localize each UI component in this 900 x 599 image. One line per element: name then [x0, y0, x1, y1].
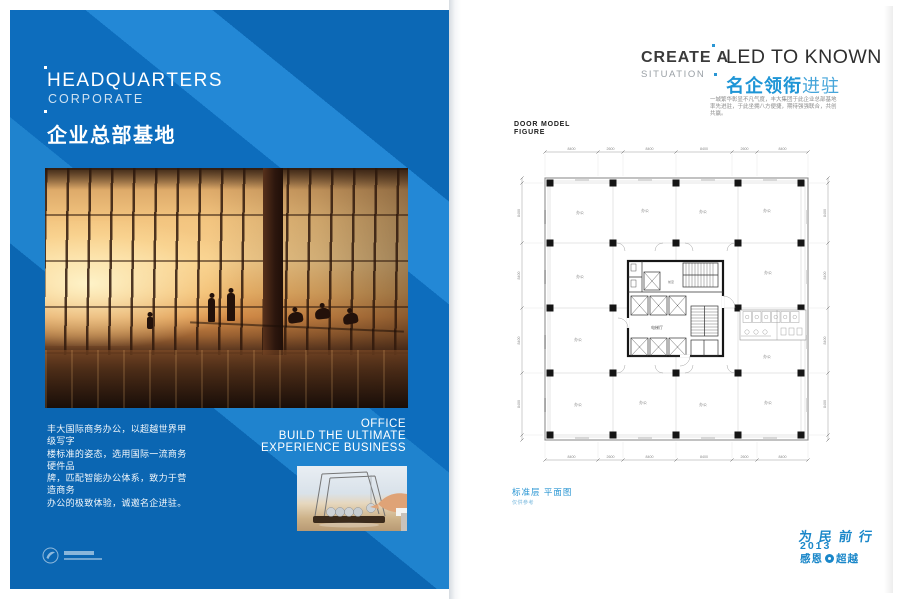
dim-label: 8400	[823, 337, 827, 345]
circle-mark-icon	[825, 554, 834, 563]
page-title: HEADQUARTERS	[47, 70, 223, 92]
footer-thanks: 感恩 超越	[800, 551, 859, 566]
paragraph-line: 共赢。	[710, 111, 862, 118]
header-led: LED TO KNOWN	[726, 46, 882, 69]
room-label: 办公	[574, 402, 582, 407]
footer-thanks-right: 超越	[836, 551, 859, 566]
page-fold-shadow	[449, 0, 465, 599]
room-label: 办公	[699, 402, 707, 407]
dim-label: 8400	[823, 272, 827, 280]
logo-text-line	[64, 558, 102, 561]
page-right-edge-shadow	[884, 6, 893, 593]
reflective-floor	[45, 350, 408, 408]
cradle-balls	[327, 475, 376, 517]
square-bullet-icon	[712, 44, 715, 47]
lobby-label: 前室	[668, 279, 674, 284]
room-label: 办公	[699, 209, 707, 214]
dim-label: 8400	[517, 272, 521, 280]
dim-label: 8400	[823, 400, 827, 408]
dim-label: 8400	[700, 455, 708, 459]
floor-plan: 办公 办公 办公 办公 办公 办公 办公 办公 办公 办公 办公 办公 电梯厅 …	[505, 140, 840, 480]
header-create: CREATE A	[641, 49, 729, 67]
dim-label: 2600	[741, 455, 749, 459]
dim-label: 8400	[779, 147, 787, 151]
tagline-line: BUILD THE ULTIMATE	[261, 430, 406, 442]
room-label: 办公	[763, 208, 771, 213]
window-mullions	[45, 168, 408, 355]
dim-label: 2600	[607, 147, 615, 151]
header-intro-paragraph: 一城繁华彰显不凡气度，丰大集团于此企业总部基地 率先进驻，于此坐拥八方便捷，期待…	[710, 97, 862, 118]
brand-logo	[42, 547, 102, 564]
newtons-cradle-photo	[297, 466, 407, 531]
logo-text-line	[64, 551, 94, 555]
footer-thanks-left: 感恩	[800, 551, 823, 566]
cradle-base	[313, 516, 385, 523]
room-label: 办公	[576, 274, 584, 279]
square-bullet-icon	[714, 73, 717, 76]
dim-label: 8400	[517, 337, 521, 345]
dim-label: 8400	[568, 147, 576, 151]
room-label: 办公	[576, 210, 584, 215]
dim-label: 8400	[517, 209, 521, 217]
paragraph-line: 一城繁华彰显不凡气度，丰大集团于此企业总部基地	[710, 97, 862, 104]
header-led-block: LED TO KNOWN 名企领衔进驻	[726, 46, 882, 98]
dim-label: 8400	[646, 455, 654, 459]
headline-cn-bold: 名企领衔	[726, 76, 802, 96]
header-headline-cn: 名企领衔进驻	[726, 72, 882, 98]
dim-label: 8400	[779, 455, 787, 459]
paragraph-line: 办公的极致体验，诚邀名企进驻。	[47, 497, 193, 509]
page-subtitle: CORPORATE	[48, 92, 144, 106]
dim-label: 2600	[607, 455, 615, 459]
dim-label: 2600	[741, 147, 749, 151]
room-label: 办公	[641, 208, 649, 213]
room-label: 办公	[574, 337, 582, 342]
paragraph-line: 牌，匹配智能办公体系，致力于营造商务	[47, 472, 193, 497]
room-label: 办公	[764, 400, 772, 405]
newtons-cradle-graphic	[297, 466, 407, 531]
reflection	[319, 523, 379, 528]
person-silhouette	[147, 317, 153, 329]
plan-heading: DOOR MODEL FIGURE	[514, 121, 570, 137]
dim-label: 8400	[568, 455, 576, 459]
paragraph-line: 丰大国际商务办公，以超越世界甲级写字	[47, 423, 193, 448]
room-label: 办公	[764, 270, 772, 275]
page-title-cn: 企业总部基地	[47, 119, 176, 148]
plan-caption: 标准层 平面图	[512, 486, 572, 498]
brand-emblem-icon	[42, 547, 59, 564]
washrooms	[740, 310, 806, 340]
plan-caption-note: 仅供参考	[512, 499, 534, 506]
dim-label: 8400	[700, 147, 708, 151]
hall-label: 电梯厅	[651, 324, 663, 330]
tagline-line: OFFICE	[261, 418, 406, 430]
person-silhouette	[288, 311, 304, 324]
intro-paragraph: 丰大国际商务办公，以超越世界甲级写字 楼标准的姿态，选用国际一流商务硬件品 牌，…	[47, 423, 193, 509]
ceiling-beam	[45, 168, 408, 190]
office-tagline: OFFICE BUILD THE ULTIMATE EXPERIENCE BUS…	[261, 418, 406, 454]
person-silhouette	[227, 293, 235, 321]
left-page-panel: HEADQUARTERS CORPORATE 企业总部基地 丰大国际商务办公，以…	[10, 10, 449, 589]
room-label: 办公	[639, 400, 647, 405]
service-core	[618, 261, 735, 366]
dim-label: 8400	[517, 400, 521, 408]
headline-cn-light: 进驻	[802, 76, 840, 96]
plan-heading-line: DOOR MODEL	[514, 121, 570, 129]
person-silhouette	[208, 298, 215, 322]
logo-text-placeholder	[64, 551, 102, 561]
dim-label: 8400	[823, 209, 827, 217]
plan-heading-line: FIGURE	[514, 129, 570, 137]
square-bullet-icon	[44, 110, 47, 113]
paragraph-line: 楼标准的姿态，选用国际一流商务硬件品	[47, 448, 193, 473]
brochure-spread: HEADQUARTERS CORPORATE 企业总部基地 丰大国际商务办公，以…	[0, 0, 900, 599]
sunset-office-photo	[45, 168, 408, 408]
floor-plan-drawing: 办公 办公 办公 办公 办公 办公 办公 办公 办公 办公 办公 办公 电梯厅 …	[505, 140, 840, 480]
paragraph-line: 率先进驻，于此坐拥八方便捷，期待强强联合，共创	[710, 104, 862, 111]
room-label: 办公	[763, 354, 771, 359]
dim-label: 8400	[646, 147, 654, 151]
square-bullet-icon	[44, 66, 47, 69]
tagline-line: EXPERIENCE BUSINESS	[261, 442, 406, 454]
